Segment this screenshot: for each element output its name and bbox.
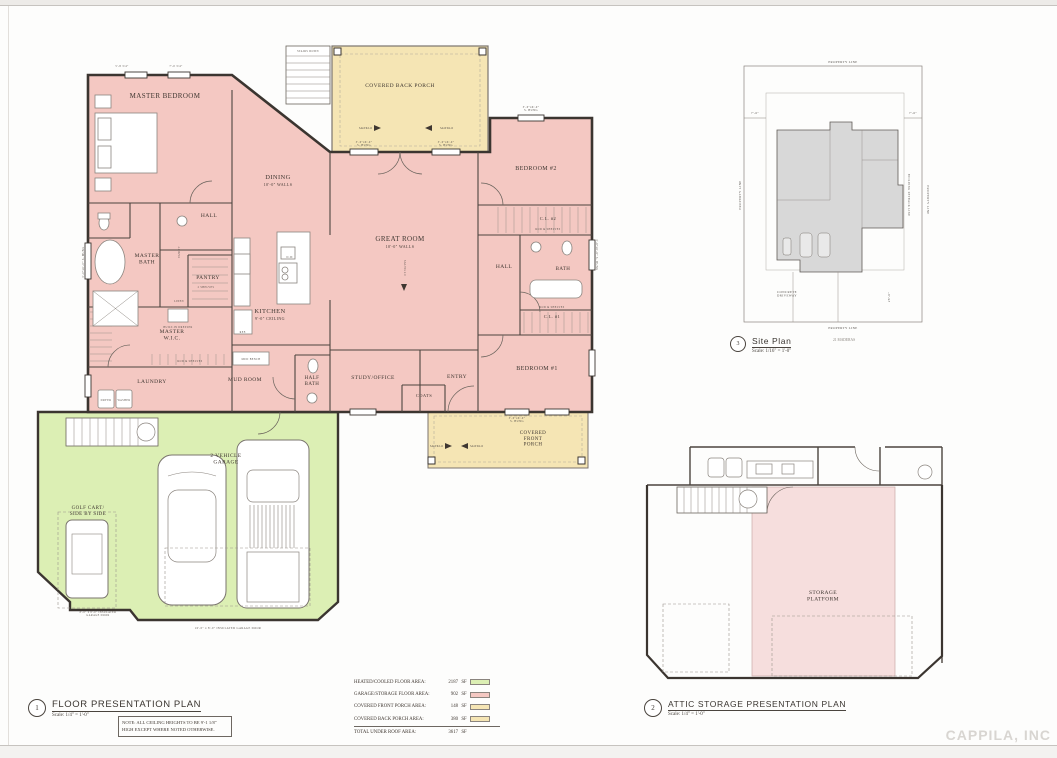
room-label-cl1: C.L. #1	[544, 314, 560, 319]
room-label-kitchen: KITCHEN	[254, 308, 285, 315]
sheet-bottom-edge	[0, 745, 1057, 758]
ann-washer: WASHER	[117, 399, 130, 402]
site-address: 21 MADERAS	[833, 338, 855, 342]
room-label-bedroom-2: BEDROOM #2	[515, 166, 557, 172]
legend-value: 380	[442, 717, 458, 722]
room-label-dining: DINING	[265, 174, 291, 181]
site-property-line-bottom: PROPERTY LINE	[828, 326, 857, 330]
ceiling-height-note: NOTE: ALL CEILING HEIGHTS TO BE 9'-1 1/8…	[118, 716, 232, 737]
legend-row-back-porch: COVERED BACK PORCH AREA: 380 SF	[354, 713, 500, 725]
room-label-bedroom-1: BEDROOM #1	[516, 366, 558, 372]
ann-garage-door-single: 8'-0" x 8'-0" INSULATEDGARAGE DOOR	[80, 611, 117, 617]
attic-plan-title-block: 2 ATTIC STORAGE PRESENTATION PLAN Scale:…	[644, 699, 846, 717]
ann-saltillo-fp-right: SALTILLO	[470, 445, 483, 448]
bath-tub	[530, 280, 582, 298]
tub	[95, 240, 125, 284]
plan-drawing: MASTER BEDROOM DINING 10'-0" WALLS GREAT…	[0, 0, 1057, 758]
title-number-circle: 1	[28, 699, 46, 717]
room-label-mud-room: MUD ROOM	[228, 377, 262, 383]
watermark: CAPPILA, INC	[946, 727, 1051, 743]
attic-plan-title: ATTIC STORAGE PRESENTATION PLAN	[668, 699, 846, 711]
room-label-cl2: C.L. #2	[540, 216, 556, 221]
ann-dryer: DRYER	[101, 399, 112, 402]
ann-saltillo-bp-left: SALTILLO	[359, 127, 372, 130]
site-dim-left: 7'-6"	[751, 111, 759, 115]
room-label-study-office: STUDY/OFFICE	[351, 375, 395, 381]
site-plan-scale: Scale: 1/16" = 1'-0"	[752, 349, 791, 354]
legend-row-heated: HEATED/COOLED FLOOR AREA: 2187 SF	[354, 676, 500, 688]
back-stairs	[286, 46, 330, 104]
ann-mud-bench: MUD BENCH	[241, 358, 260, 361]
legend-value: 3617	[442, 730, 458, 735]
legend-unit: SF	[458, 680, 470, 685]
title-number-circle: 3	[730, 336, 746, 352]
legend-label: GARAGE/STORAGE FLOOR AREA:	[354, 692, 442, 697]
room-label-hall-left: HALL	[201, 213, 218, 219]
ann-saltillo-bp-right: SALTILLO	[440, 127, 453, 130]
ann-ref: REF.	[240, 331, 247, 334]
ann-window-2: 3'-0"x6'-0"S. HUNG	[438, 141, 455, 147]
legend-unit: SF	[458, 692, 470, 697]
truck	[237, 440, 309, 608]
room-label-bath: BATH	[556, 267, 571, 272]
site-plan-title-block: 3 Site Plan Scale: 1/16" = 1'-0"	[730, 336, 791, 354]
ann-window-6: 3'-0"x6'-0" S. HUNG	[82, 246, 85, 277]
legend-unit: SF	[458, 717, 470, 722]
ann-dim-b: 7'-0 3/4"	[169, 65, 182, 68]
golf-cart	[66, 520, 108, 598]
legend-value: 902	[442, 692, 458, 697]
ann-dw: D.W.	[287, 256, 294, 259]
legend-label: HEATED/COOLED FLOOR AREA:	[354, 680, 442, 685]
storage-platform-area	[752, 487, 895, 676]
legend-swatch-yellow	[470, 716, 490, 722]
area-legend: HEATED/COOLED FLOOR AREA: 2187 SF GARAGE…	[354, 676, 500, 739]
site-dim-bottom: 28'-0"	[887, 292, 891, 302]
legend-row-front-porch: COVERED FRONT PORCH AREA: 148 SF	[354, 701, 500, 713]
legend-label: COVERED BACK PORCH AREA:	[354, 717, 442, 722]
ann-two-shelves: 2 SHELVES	[198, 286, 215, 289]
ann-vanity: VANITY	[178, 246, 181, 258]
attic-plan: STORAGEPLATFORM	[647, 447, 942, 678]
ann-saltillo-fp-left: SALTILLO	[430, 445, 443, 448]
room-sublabel-great-room: 10'-0" WALLS	[386, 244, 415, 249]
ann-rod-shelves-cl2: ROD & SHELVES	[535, 228, 560, 231]
legend-swatch-pink	[470, 692, 490, 698]
site-property-line-right: PROPERTY LINE	[926, 185, 930, 214]
site-setback-line: BUILDING SETBACK LINE	[907, 174, 910, 216]
ann-rod-shelves-wic: ROD & SHELVES	[177, 360, 202, 363]
legend-unit: SF	[458, 704, 470, 709]
ann-window-3: 3'-0"x6'-0"S. HUNG	[523, 106, 540, 112]
site-building-footprint	[777, 122, 903, 272]
floor-plan-title: FLOOR PRESENTATION PLAN	[52, 699, 201, 712]
site-property-line-top: PROPERTY LINE	[828, 60, 857, 64]
floor-plan: MASTER BEDROOM DINING 10'-0" WALLS GREAT…	[38, 46, 598, 630]
room-label-coats: COATS	[416, 393, 432, 398]
ann-stairs-down: STAIRS DOWN	[297, 50, 319, 53]
attic-fixtures	[708, 458, 932, 479]
ann-saltillo-great-room: SALTILLO	[403, 260, 406, 276]
site-property-line-left: PROPERTY LINE	[738, 180, 742, 209]
ann-garage-door-double: 16'-0" x 8'-0" INSULATED GARAGE DOOR	[195, 627, 261, 630]
site-dim-right: 7'-6"	[909, 111, 917, 115]
room-label-half-bath: HALFBATH	[305, 376, 320, 387]
legend-label: TOTAL UNDER ROOF AREA:	[354, 730, 442, 735]
legend-row-total: TOTAL UNDER ROOF AREA: 3617 SF	[354, 726, 500, 739]
room-label-great-room: GREAT ROOM	[375, 235, 425, 243]
legend-row-garage: GARAGE/STORAGE FLOOR AREA: 902 SF	[354, 688, 500, 700]
room-label-entry: ENTRY	[447, 374, 467, 380]
legend-swatch-green	[470, 679, 490, 685]
ann-built-in-dresser: BUILT-IN DRESSER	[163, 326, 192, 329]
ann-rod-shelves-cl1: ROD & SHELVES	[539, 306, 564, 309]
room-label-master-bedroom: MASTER BEDROOM	[130, 92, 201, 100]
ann-window-4: 3'-0"x6'-0"S. HUNG	[509, 417, 526, 423]
covered-front-porch-area	[428, 412, 588, 468]
drawing-sheet: MASTER BEDROOM DINING 10'-0" WALLS GREAT…	[0, 0, 1057, 758]
covered-back-porch-area	[332, 46, 488, 152]
room-sublabel-dining: 10'-0" WALLS	[264, 182, 293, 187]
legend-swatch-yellow	[470, 704, 490, 710]
room-label-back-porch: COVERED BACK PORCH	[365, 83, 435, 89]
legend-unit: SF	[458, 730, 470, 735]
room-label-pantry: PANTRY	[196, 275, 220, 281]
legend-value: 2187	[442, 680, 458, 685]
ann-dim-a: 5'-8 3/4"	[115, 65, 128, 68]
legend-value: 148	[442, 704, 458, 709]
ann-linen: LINEN	[174, 300, 184, 303]
site-plan: PROPERTY LINE PROPERTY LINE PROPERTY LIN…	[738, 60, 930, 330]
ann-window-5: 3'-0"x6'-0" S. HUNG	[595, 239, 598, 270]
room-sublabel-kitchen: 9'-0" CEILING	[255, 316, 285, 321]
title-number-circle: 2	[644, 699, 662, 717]
room-label-hall-right: HALL	[496, 264, 513, 270]
site-plan-title: Site Plan	[752, 336, 791, 348]
room-label-laundry: LAUNDRY	[137, 379, 166, 385]
room-label-golf-cart: GOLF CART/SIDE BY SIDE	[70, 506, 106, 517]
room-label-garage: 2 VEHICLEGARAGE	[210, 453, 241, 465]
legend-label: COVERED FRONT PORCH AREA:	[354, 704, 442, 709]
attic-plan-scale: Scale: 1/4" = 1'-0"	[668, 712, 846, 717]
room-label-storage-platform: STORAGEPLATFORM	[807, 590, 839, 602]
site-driveway-lines	[793, 272, 838, 322]
ann-window-1: 3'-0"x6'-0"S. HUNG	[356, 141, 373, 147]
site-driveway-label: CONCRETEDRIVEWAY	[777, 290, 797, 298]
